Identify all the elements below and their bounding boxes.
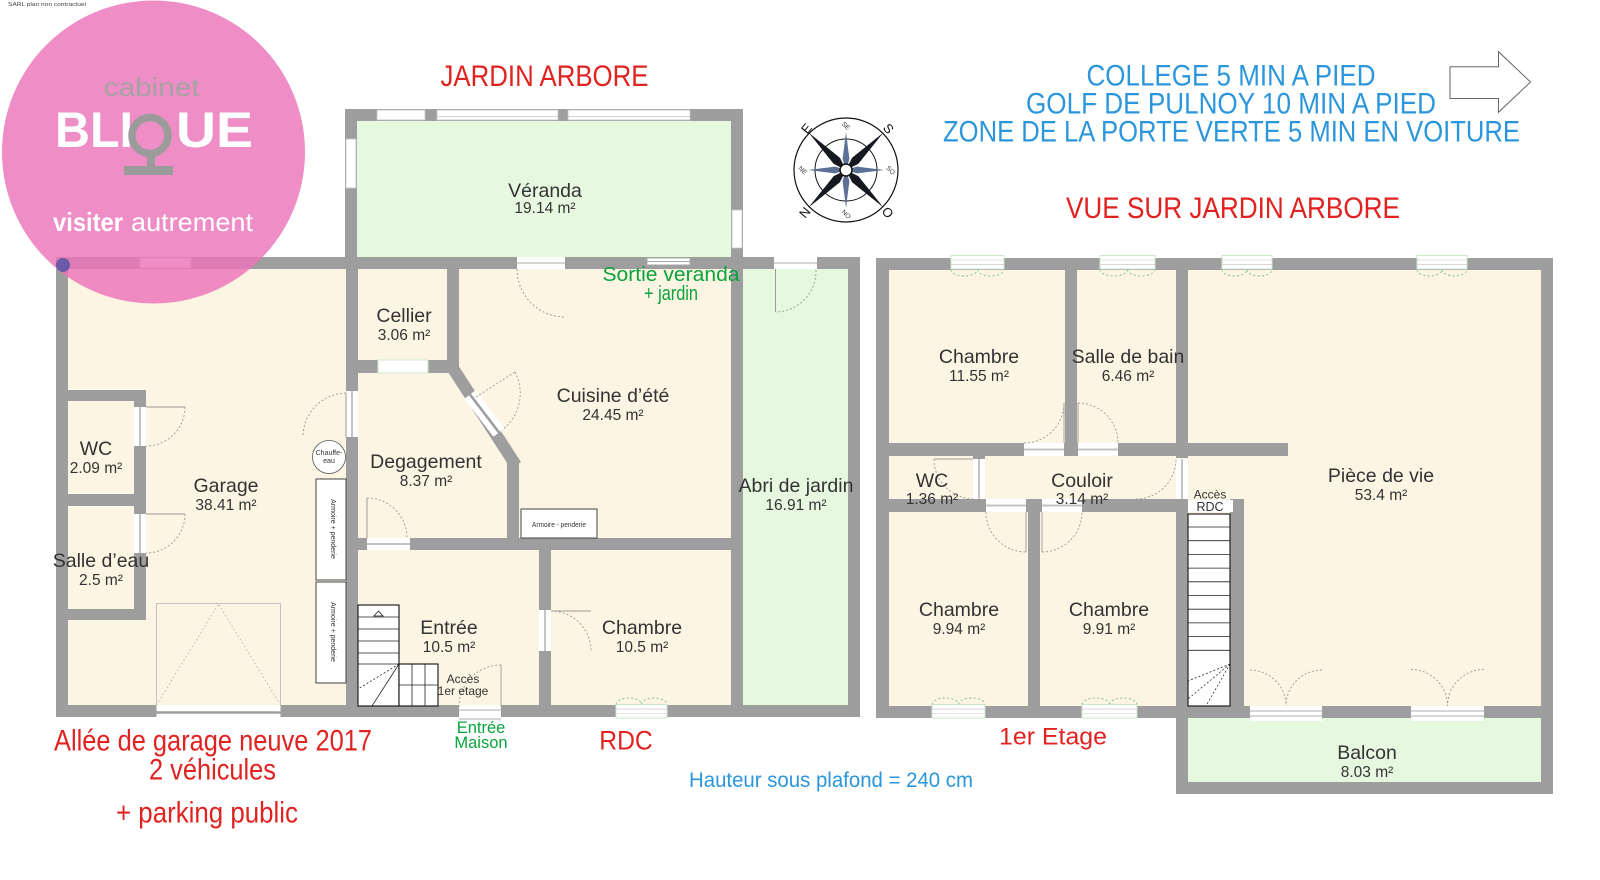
- svg-text:visiter: visiter: [53, 207, 123, 237]
- svg-text:WC: WC: [80, 438, 113, 460]
- svg-text:Chauffe-: Chauffe-: [316, 450, 343, 457]
- svg-text:Entrée: Entrée: [420, 617, 477, 639]
- svg-text:autrement: autrement: [131, 207, 254, 237]
- svg-text:1er Etage: 1er Etage: [999, 724, 1107, 751]
- svg-text:VUE SUR JARDIN ARBORE: VUE SUR JARDIN ARBORE: [1066, 192, 1400, 225]
- svg-text:8.03 m²: 8.03 m²: [1341, 764, 1394, 781]
- svg-text:Chambre: Chambre: [939, 346, 1019, 368]
- svg-text:Chambre: Chambre: [1069, 599, 1149, 621]
- svg-text:cabinet: cabinet: [104, 72, 201, 102]
- svg-text:SARL plan non contractuel: SARL plan non contractuel: [8, 2, 86, 8]
- svg-text:38.41 m²: 38.41 m²: [195, 497, 256, 514]
- svg-text:53.4 m²: 53.4 m²: [1355, 487, 1408, 504]
- svg-text:+ parking public: + parking public: [116, 797, 298, 830]
- svg-text:10.5 m²: 10.5 m²: [616, 639, 669, 656]
- svg-text:19.14 m²: 19.14 m²: [514, 200, 575, 217]
- svg-text:RDC: RDC: [1196, 500, 1223, 514]
- svg-text:Hauteur sous plafond = 240 cm: Hauteur sous plafond = 240 cm: [689, 769, 973, 792]
- svg-text:2 véhicules: 2 véhicules: [149, 754, 276, 787]
- svg-text:ZONE DE LA PORTE VERTE 5 MIN E: ZONE DE LA PORTE VERTE 5 MIN EN VOITURE: [943, 116, 1520, 149]
- svg-text:1.36 m²: 1.36 m²: [906, 491, 959, 508]
- svg-text:10.5 m²: 10.5 m²: [423, 639, 476, 656]
- svg-text:8.37 m²: 8.37 m²: [400, 473, 453, 490]
- svg-text:JARDIN ARBORE: JARDIN ARBORE: [441, 60, 649, 93]
- svg-text:3.14 m²: 3.14 m²: [1056, 491, 1109, 508]
- svg-text:3.06 m²: 3.06 m²: [378, 327, 431, 344]
- svg-text:Salle d’eau: Salle d’eau: [53, 550, 150, 572]
- svg-text:WC: WC: [916, 470, 949, 492]
- svg-text:6.46 m²: 6.46 m²: [1102, 368, 1155, 385]
- svg-text:Armoire - penderie: Armoire - penderie: [532, 520, 586, 529]
- svg-text:eau: eau: [323, 458, 335, 465]
- svg-text:Garage: Garage: [193, 475, 258, 497]
- svg-text:1er etage: 1er etage: [438, 684, 489, 698]
- svg-text:Armoire + penderie: Armoire + penderie: [329, 499, 336, 559]
- svg-text:+ jardin: + jardin: [644, 283, 698, 305]
- svg-text:Chambre: Chambre: [919, 599, 999, 621]
- svg-text:Chambre: Chambre: [602, 617, 682, 639]
- svg-text:2.5 m²: 2.5 m²: [79, 572, 123, 589]
- svg-text:9.94 m²: 9.94 m²: [933, 621, 986, 638]
- svg-text:Véranda: Véranda: [508, 180, 582, 202]
- svg-text:16.91 m²: 16.91 m²: [765, 497, 826, 514]
- svg-text:Cuisine d’été: Cuisine d’été: [557, 385, 670, 407]
- svg-text:BLI: BLI: [55, 102, 133, 158]
- svg-text:Degagement: Degagement: [370, 451, 482, 473]
- svg-text:Pièce de vie: Pièce de vie: [1328, 465, 1434, 487]
- svg-text:RDC: RDC: [599, 726, 653, 756]
- svg-text:2.09 m²: 2.09 m²: [70, 460, 123, 477]
- svg-text:24.45 m²: 24.45 m²: [582, 407, 643, 424]
- svg-text:Couloir: Couloir: [1051, 470, 1113, 492]
- svg-text:UE: UE: [176, 102, 253, 158]
- svg-text:Abri de jardin: Abri de jardin: [739, 475, 854, 497]
- svg-text:Armoire + penderie: Armoire + penderie: [329, 602, 336, 662]
- svg-text:11.55 m²: 11.55 m²: [949, 368, 1009, 385]
- svg-text:9.91 m²: 9.91 m²: [1083, 621, 1136, 638]
- svg-text:Cellier: Cellier: [376, 305, 432, 327]
- svg-text:Salle de bain: Salle de bain: [1072, 346, 1185, 368]
- svg-text:Balcon: Balcon: [1337, 742, 1397, 764]
- svg-text:Maison: Maison: [454, 734, 507, 752]
